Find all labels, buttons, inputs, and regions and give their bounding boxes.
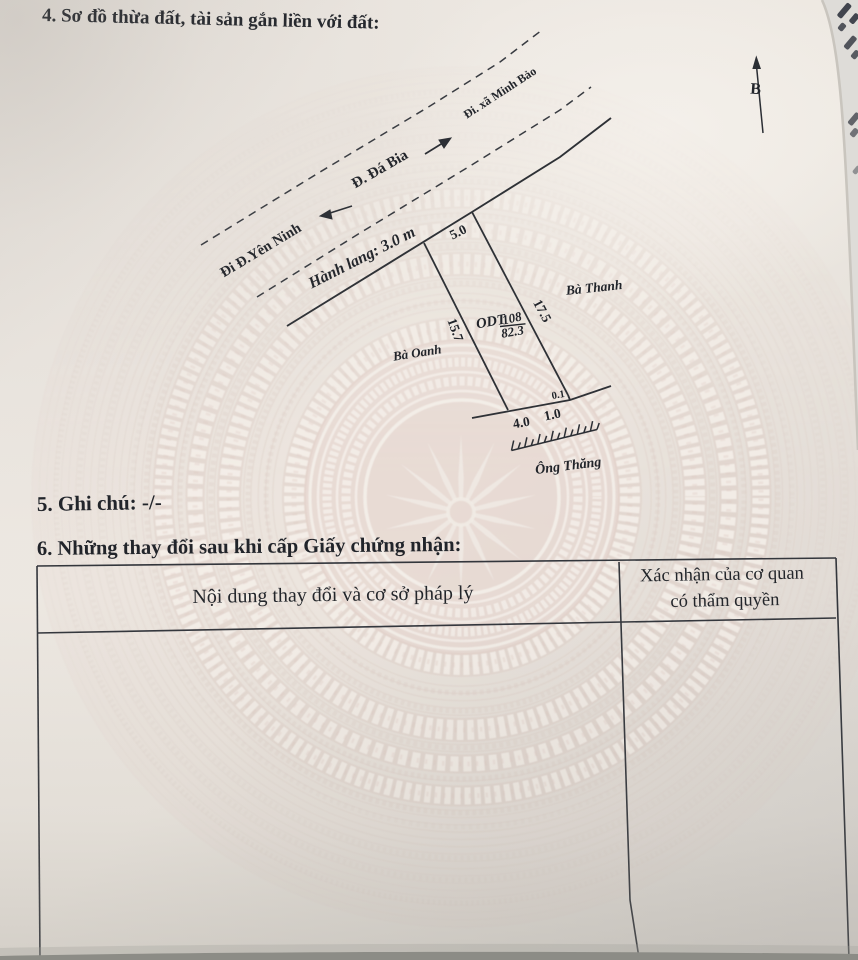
svg-text:có thẩm quyền: có thẩm quyền (670, 590, 779, 612)
svg-text:4.0: 4.0 (512, 414, 531, 432)
svg-text:0.1: 0.1 (551, 389, 566, 402)
svg-text:Xác nhận của cơ quan: Xác nhận của cơ quan (640, 564, 804, 587)
svg-text:B: B (750, 81, 762, 99)
svg-text:6. Những thay đổi sau khi cấp: 6. Những thay đổi sau khi cấp Giấy chứng… (37, 534, 462, 560)
svg-text:Nội dung thay đổi và cơ sở phá: Nội dung thay đổi và cơ sở pháp lý (192, 582, 473, 608)
svg-text:5. Ghi chú: -/-: 5. Ghi chú: -/- (37, 490, 162, 516)
